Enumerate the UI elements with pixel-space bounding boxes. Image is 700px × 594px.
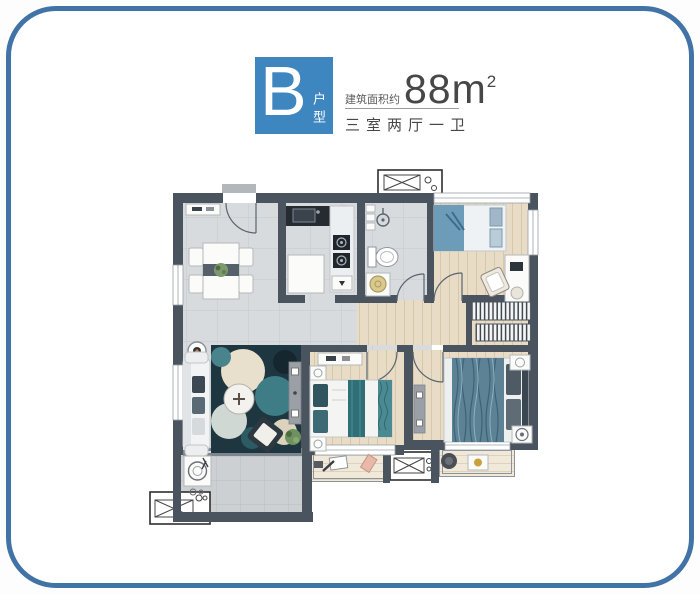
dark-item <box>314 461 323 468</box>
area-prefix: 建筑面积约 <box>345 91 400 107</box>
floor-plan <box>140 160 570 545</box>
living-room <box>183 342 301 456</box>
kitchen-sink <box>293 209 315 222</box>
area-value: 88m <box>404 69 487 110</box>
master-nightstand <box>510 355 530 370</box>
bedroom3-nightstand <box>310 437 326 451</box>
entry-landing <box>222 184 256 193</box>
dining-chair <box>189 248 203 266</box>
kitchen-island <box>288 255 324 293</box>
area-superscript: 2 <box>487 72 496 92</box>
wardrobe-lower <box>476 324 531 341</box>
bathroom-cabinet <box>366 205 375 230</box>
bedroom2-top-window <box>434 193 530 203</box>
ac-unit-bottom-middle <box>390 452 436 480</box>
area-line: 建筑面积约 88m 2 <box>345 69 496 110</box>
dining-window <box>173 265 183 305</box>
bedroom3-bed <box>310 380 392 437</box>
gold-dish <box>474 459 482 467</box>
dining-chair <box>239 275 253 293</box>
entry-console <box>186 204 220 215</box>
unit-letter-block: B 户型 <box>255 57 333 134</box>
unit-letter: B <box>260 49 307 133</box>
bedroom3-balcony-door <box>315 445 395 455</box>
coffee-table <box>224 384 254 414</box>
bedroom3-dresser <box>318 353 362 365</box>
layout-text: 三室两厅一卫 <box>345 114 471 135</box>
dining-chair <box>239 248 253 266</box>
wardrobe-upper <box>472 302 531 320</box>
washing-machine <box>184 456 211 486</box>
toilet <box>368 247 398 267</box>
bedroom2-desk <box>505 255 529 307</box>
master-fan-unit <box>512 426 532 443</box>
table-plant <box>214 263 228 277</box>
bedroom2-right-window <box>528 210 538 255</box>
bedroom3-nightstand <box>310 366 326 380</box>
dining-chair <box>189 275 203 293</box>
sofa <box>183 352 210 456</box>
bedroom2-bed <box>434 205 506 251</box>
living-window <box>173 365 183 420</box>
living-plant <box>285 429 301 445</box>
tv-bench <box>289 362 301 424</box>
unit-type-label: 户型 <box>309 92 328 128</box>
header-divider <box>345 108 459 109</box>
washbasin <box>366 273 390 296</box>
ac-unit-top <box>378 170 442 195</box>
